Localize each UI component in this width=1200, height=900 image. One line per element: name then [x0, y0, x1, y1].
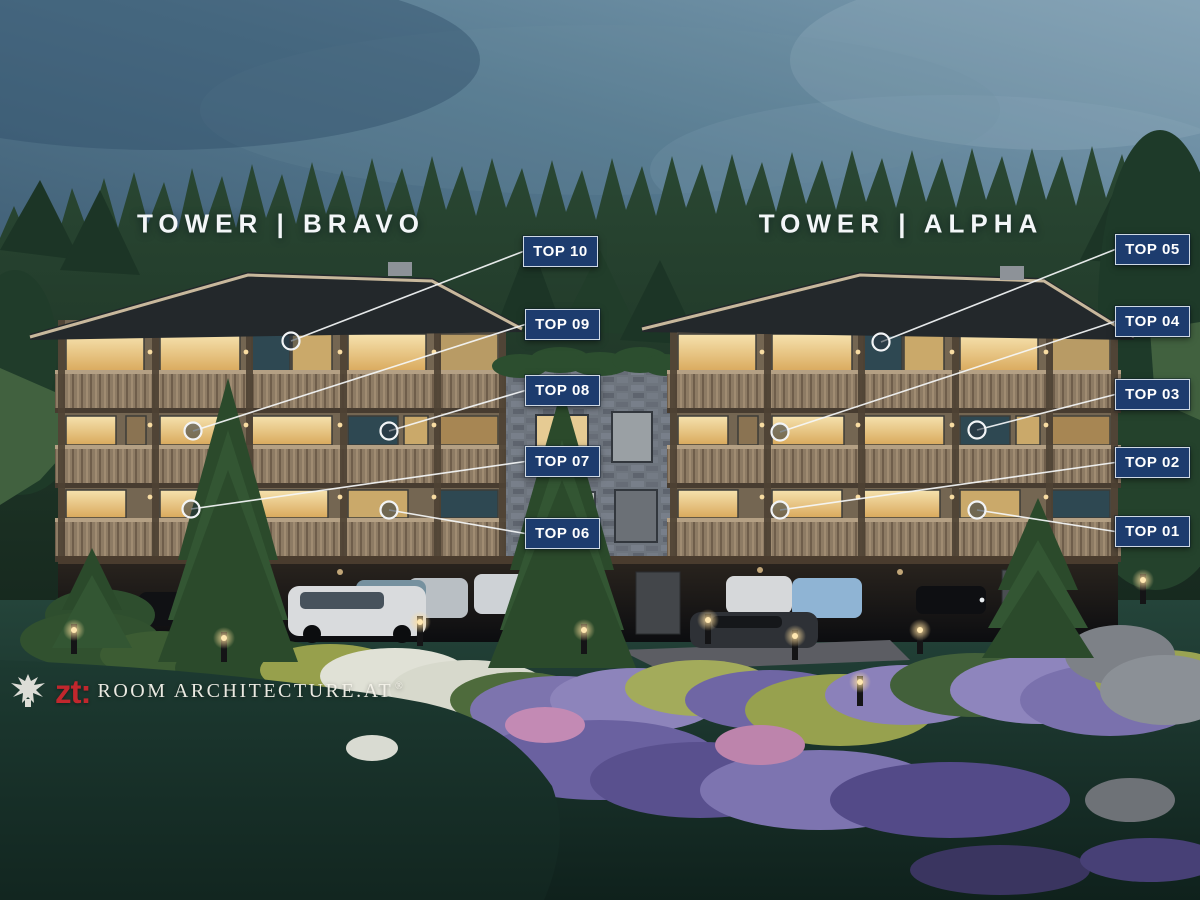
unit-badge-top-07[interactable]: TOP 07	[525, 446, 600, 477]
registered-mark: ®	[395, 681, 405, 692]
unit-badge-top-06[interactable]: TOP 06	[525, 518, 600, 549]
architectural-rendering: TOWER | BRAVO TOWER | ALPHA zt: ROOM ARC…	[0, 0, 1200, 900]
unit-badge-top-05[interactable]: TOP 05	[1115, 234, 1190, 265]
unit-badge-top-08[interactable]: TOP 08	[525, 375, 600, 406]
zt-eagle-emblem-icon	[8, 671, 48, 711]
unit-badge-top-02[interactable]: TOP 02	[1115, 447, 1190, 478]
scene-artwork	[0, 0, 1200, 900]
unit-badge-top-09[interactable]: TOP 09	[525, 309, 600, 340]
tower-label-alpha: TOWER | ALPHA	[759, 209, 1044, 240]
rock-white	[346, 735, 398, 761]
building-tower-alpha	[642, 266, 1134, 568]
zt-logo-text: zt:	[55, 675, 90, 708]
car-white-suv-right	[726, 576, 792, 614]
unit-badge-top-03[interactable]: TOP 03	[1115, 379, 1190, 410]
watermark-name: ROOM ARCHITECTURE.AT®	[97, 680, 405, 703]
unit-badge-top-01[interactable]: TOP 01	[1115, 516, 1190, 547]
car-white-suv-left	[288, 586, 426, 643]
watermark: zt: ROOM ARCHITECTURE.AT®	[8, 668, 405, 714]
unit-badge-top-04[interactable]: TOP 04	[1115, 306, 1190, 337]
unit-badge-top-10[interactable]: TOP 10	[523, 236, 598, 267]
car-black-suv	[916, 586, 986, 614]
tower-label-bravo: TOWER | BRAVO	[137, 209, 425, 240]
